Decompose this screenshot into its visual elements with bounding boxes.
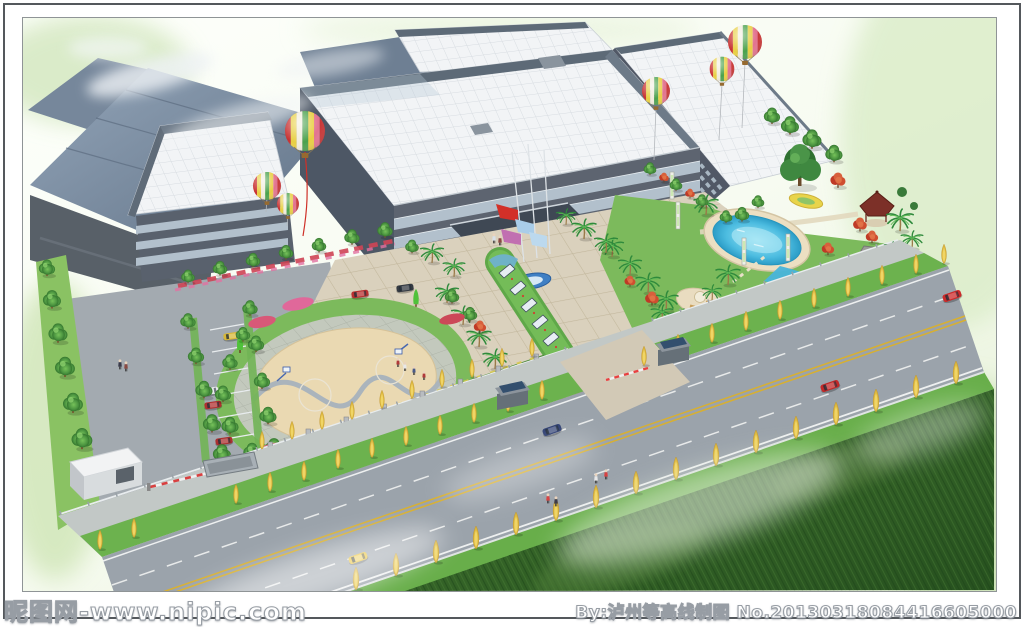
rendering-viewport (22, 17, 997, 592)
rendering-scene (23, 18, 996, 591)
patio-umbrella (695, 292, 706, 303)
watermark-right: By:泸州等高线制图 No.20130318084416605000 (575, 598, 1017, 623)
